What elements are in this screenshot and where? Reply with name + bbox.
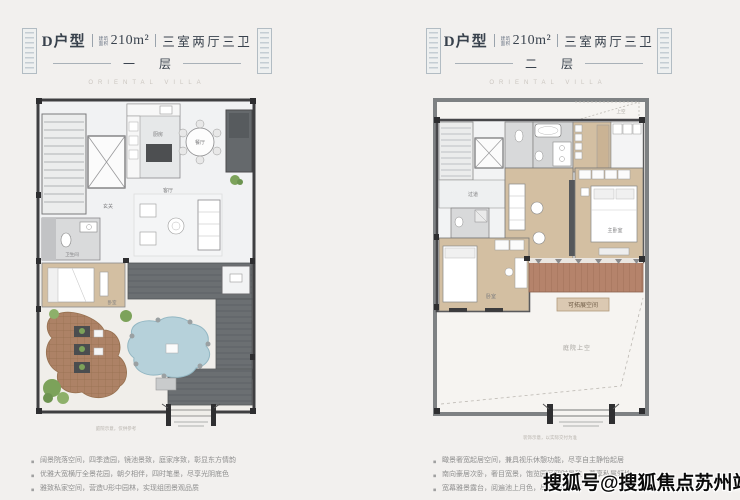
plan-title: D户型 建筑 面积 210m² 三室两厅三卫 xyxy=(444,30,654,51)
room-layout-label: 三室两厅三卫 xyxy=(564,31,654,50)
toilet-room xyxy=(505,122,533,168)
bedroom: 卧室 xyxy=(42,263,125,307)
bullet-item: 阔景院落空间，四季造园，镜池景致，庭家序致，彰显东方情韵 xyxy=(30,454,340,468)
foyer-label: 玄关 xyxy=(103,203,113,210)
living-label: 客厅 xyxy=(163,187,173,194)
plan-title: D户型 建筑 面积 210m² 三室两厅三卫 xyxy=(42,30,252,51)
bullet-item: 雅致私家空间，营造U形中园林，实现组团景观品质 xyxy=(30,482,340,496)
floor-row: 二层 xyxy=(441,55,657,72)
second-bathroom xyxy=(451,208,489,238)
divider xyxy=(494,34,495,47)
floorplan-drawing-first-floor: 厨房 餐厅 玄关 xyxy=(28,92,318,452)
plan-header-second-floor: D户型 建筑 面积 210m² 三室两厅三卫 二层 xyxy=(426,28,672,74)
dining-label: 餐厅 xyxy=(195,139,205,146)
corridor: 过道 xyxy=(439,180,505,208)
area-label: 建筑 面积 xyxy=(99,36,109,46)
subtitle-oriental-villa: ORIENTAL VILLA xyxy=(448,80,648,86)
floorplan-page: D户型 建筑 面积 210m² 三室两厅三卫 一层 ORIENTAL VILLA xyxy=(0,0,740,500)
plan-caption: 庭院示意，仅供参考 xyxy=(96,425,137,432)
wardrobe-room xyxy=(611,122,643,172)
bullet-item: 瞰景奢宽起居空间，兼具视乐休憩功能，尽享自主静怡起居 xyxy=(432,454,732,468)
bath-label: 卫生间 xyxy=(65,251,79,258)
staircase xyxy=(42,114,86,214)
area-label: 建筑 面积 xyxy=(501,36,511,46)
seal-ornament-icon xyxy=(257,28,272,74)
media-wall xyxy=(569,180,575,256)
bedroom-label: 卧室 xyxy=(108,299,117,306)
expandable-space-label: 可拓展空间 xyxy=(568,301,598,309)
bathroom: 卫生间 xyxy=(42,218,100,260)
second-bedroom: 卧室 xyxy=(439,238,529,312)
floor-row: 一层 xyxy=(37,55,257,72)
plan-header-first-floor: D户型 建筑 面积 210m² 三室两厅三卫 一层 xyxy=(22,28,272,74)
expandable-space-tag: 可拓展空间 xyxy=(557,298,609,311)
entrance-gate xyxy=(162,404,220,426)
seal-ornament-icon xyxy=(426,28,441,74)
kitchen-label: 厨房 xyxy=(153,131,163,138)
bedroom-label: 卧室 xyxy=(486,293,496,300)
plan-caption: 装饰示意，以实际交付为准 xyxy=(523,434,577,441)
subtitle-oriental-villa: ORIENTAL VILLA xyxy=(47,80,247,86)
sohu-watermark: 搜狐号@搜狐焦点苏州站 xyxy=(543,468,740,495)
corridor-label: 过道 xyxy=(468,191,478,198)
area-value: 210m² xyxy=(513,33,552,49)
staircase xyxy=(439,122,473,180)
master-bathroom xyxy=(533,122,573,168)
walk-in-closet xyxy=(573,122,611,172)
courtyard-void-label: 庭院上空 xyxy=(563,344,591,352)
area-value: 210m² xyxy=(111,33,150,49)
master-label: 主卧室 xyxy=(607,227,622,234)
unit-type-label: D户型 xyxy=(444,30,488,51)
divider xyxy=(92,34,93,47)
divider xyxy=(557,34,558,47)
room-layout-label: 三室两厅三卫 xyxy=(162,31,252,50)
unit-type-label: D户型 xyxy=(42,30,86,51)
living-room: 客厅 xyxy=(134,187,222,256)
master-bedroom: 主卧室 xyxy=(575,168,643,262)
feature-bullets-first-floor: 阔景院落空间，四季造园，镜池景致，庭家序致，彰显东方情韵 优雅大宽横厅全景花园，… xyxy=(30,454,340,496)
floorplan-drawing-second-floor: 上空 过道 xyxy=(425,92,670,442)
pavilion xyxy=(222,266,250,294)
kitchen: 厨房 xyxy=(127,104,180,178)
sky-label: 上空 xyxy=(617,108,626,114)
divider xyxy=(155,34,156,47)
elevator xyxy=(475,138,503,168)
elevator xyxy=(88,136,125,188)
seal-ornament-icon xyxy=(22,28,37,74)
roof-terrace xyxy=(529,258,643,292)
bullet-item: 优雅大宽横厅全景花园，朝夕相伴，四时笔墨，尽享光阴底色 xyxy=(30,468,340,482)
seal-ornament-icon xyxy=(657,28,672,74)
